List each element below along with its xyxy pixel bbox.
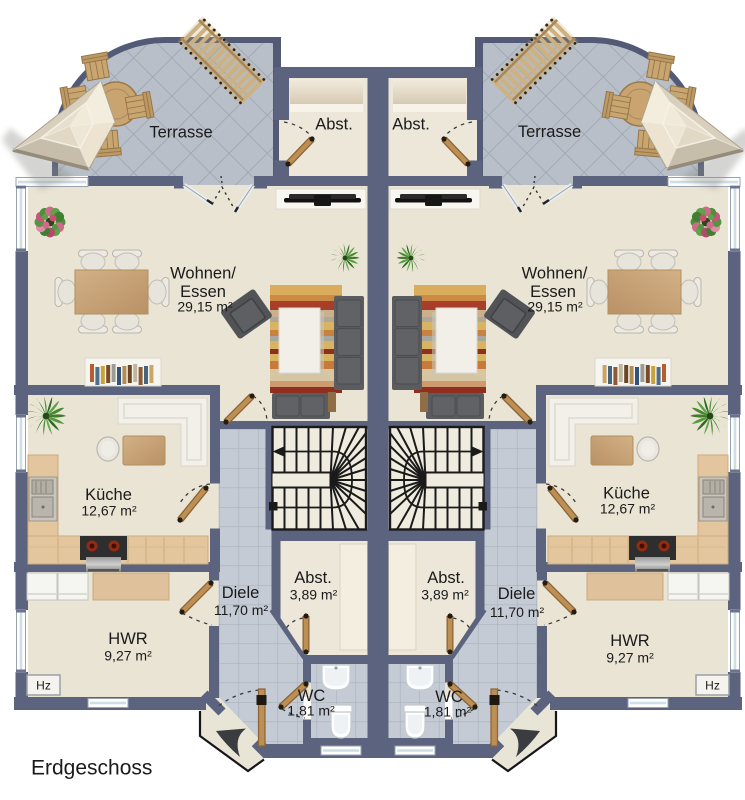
svg-text:1,81 m²: 1,81 m²: [424, 704, 472, 720]
svg-text:Erdgeschoss: Erdgeschoss: [31, 757, 152, 780]
svg-text:Wohnen/: Wohnen/: [170, 265, 236, 283]
svg-text:HWR: HWR: [108, 630, 147, 648]
svg-text:3,89 m²: 3,89 m²: [421, 587, 469, 603]
svg-text:Terrasse: Terrasse: [518, 123, 581, 141]
svg-text:HWR: HWR: [610, 632, 649, 650]
svg-text:Abst.: Abst.: [315, 116, 353, 134]
svg-text:Terrasse: Terrasse: [149, 124, 212, 142]
svg-text:9,27 m²: 9,27 m²: [104, 648, 152, 664]
svg-text:Hz: Hz: [36, 679, 51, 693]
svg-text:11,70 m²: 11,70 m²: [490, 604, 545, 620]
svg-text:Abst.: Abst.: [294, 569, 332, 587]
svg-text:11,70 m²: 11,70 m²: [214, 602, 269, 618]
svg-text:9,27 m²: 9,27 m²: [606, 650, 654, 666]
svg-text:3,89 m²: 3,89 m²: [290, 587, 338, 603]
svg-text:Diele: Diele: [498, 585, 536, 603]
svg-text:Abst.: Abst.: [427, 569, 465, 587]
svg-text:12,67 m²: 12,67 m²: [81, 503, 137, 519]
svg-text:Diele: Diele: [222, 584, 260, 602]
svg-text:Küche: Küche: [85, 486, 132, 504]
svg-text:Abst.: Abst.: [392, 116, 430, 134]
svg-text:Wohnen/: Wohnen/: [522, 265, 588, 283]
svg-text:Hz: Hz: [705, 679, 720, 693]
svg-text:12,67 m²: 12,67 m²: [600, 501, 656, 517]
svg-text:29,15 m²: 29,15 m²: [177, 299, 233, 315]
svg-text:29,15 m²: 29,15 m²: [527, 299, 583, 315]
svg-text:1,81 m²: 1,81 m²: [287, 703, 335, 719]
